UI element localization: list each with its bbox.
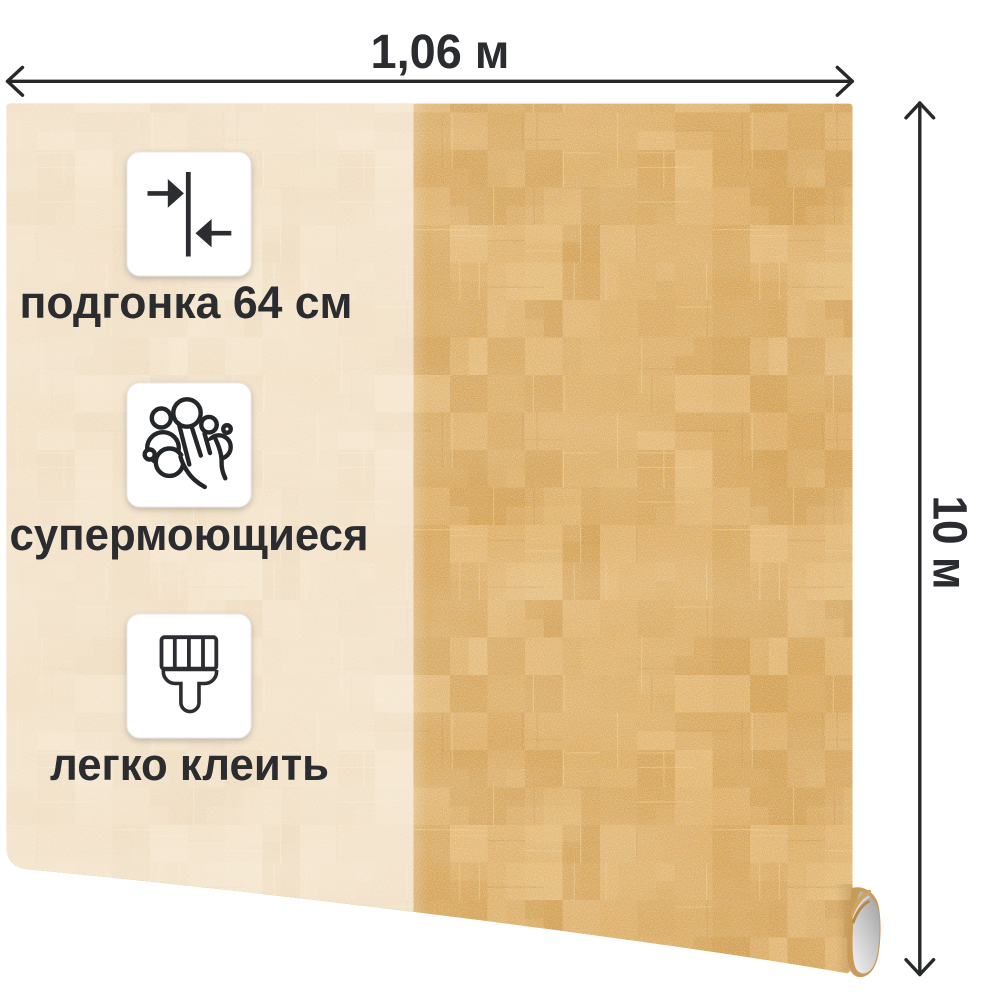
svg-text:подгонка 64 см: подгонка 64 см bbox=[20, 277, 353, 328]
svg-text:1,06 м: 1,06 м bbox=[371, 26, 510, 79]
svg-text:10 м: 10 м bbox=[923, 496, 976, 590]
svg-text:супермоющиеся: супермоющиеся bbox=[10, 509, 369, 560]
svg-text:легко клеить: легко клеить bbox=[50, 739, 329, 790]
